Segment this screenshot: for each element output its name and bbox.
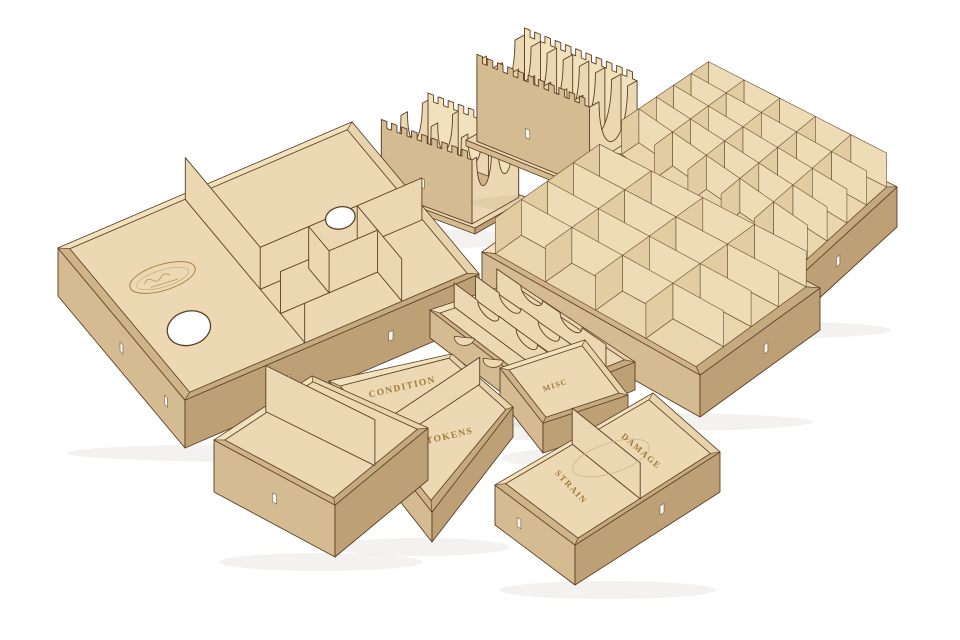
soft-shadow [333, 538, 510, 556]
product-photo: Laser-cut plywood board game organizer i… [0, 0, 960, 640]
organizer-set-canvas: MISCCONDITIONID TOKENSDAMAGESTRAIN [0, 0, 960, 640]
soft-shadow [499, 581, 716, 599]
soft-shadow [219, 553, 423, 571]
wall-slot-cutout [389, 330, 393, 341]
wall-slot-cutout [272, 493, 276, 504]
wall-slot-cutout [525, 129, 529, 140]
